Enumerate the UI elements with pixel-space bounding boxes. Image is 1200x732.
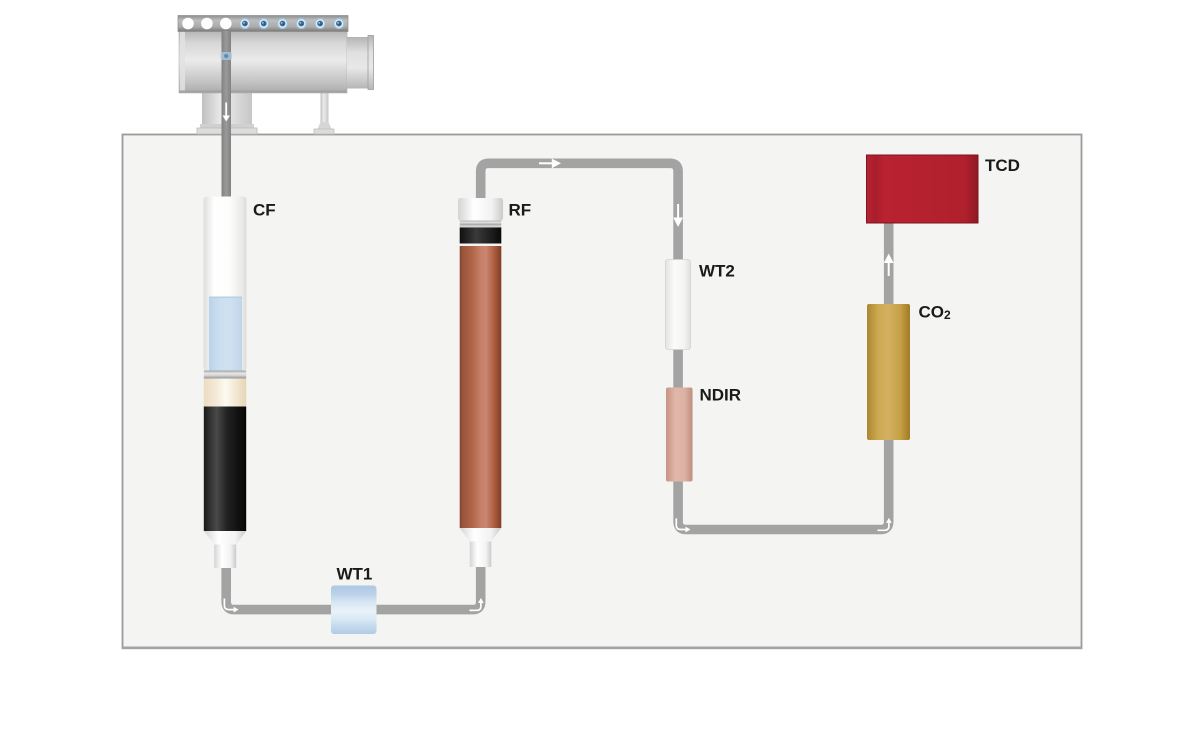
svg-text:WT1: WT1: [337, 565, 373, 584]
svg-text:CF: CF: [253, 201, 276, 220]
svg-text:RF: RF: [509, 201, 532, 220]
svg-text:TCD: TCD: [985, 156, 1020, 175]
svg-text:WT2: WT2: [699, 262, 735, 281]
svg-text:NDIR: NDIR: [700, 386, 742, 405]
